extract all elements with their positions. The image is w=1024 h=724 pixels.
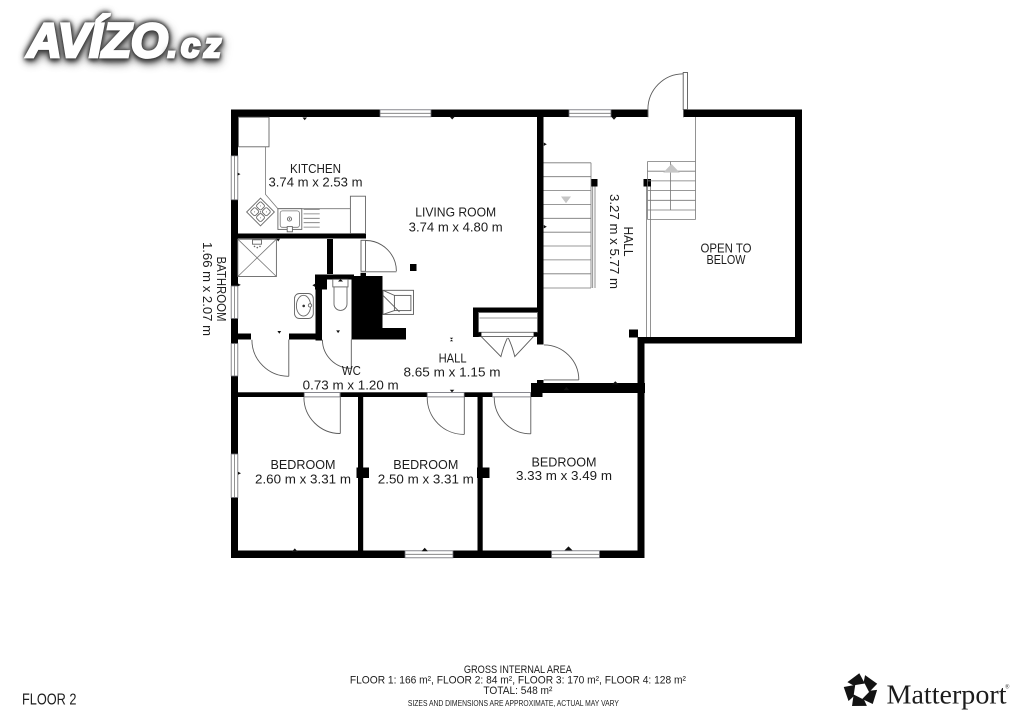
- svg-text:BELOW: BELOW: [707, 252, 747, 267]
- svg-text:Matterport: Matterport: [887, 678, 1007, 709]
- svg-text:3.33 m x 3.49 m: 3.33 m x 3.49 m: [516, 468, 612, 483]
- svg-text:3.74 m x 4.80 m: 3.74 m x 4.80 m: [409, 220, 503, 235]
- svg-text:SIZES AND DIMENSIONS ARE APPRO: SIZES AND DIMENSIONS ARE APPROXIMATE, AC…: [408, 699, 620, 708]
- svg-text:3.74 m x 2.53 m: 3.74 m x 2.53 m: [269, 175, 363, 190]
- svg-text:2.50 m x 3.31 m: 2.50 m x 3.31 m: [378, 471, 474, 486]
- svg-text:2.60 m x 3.31 m: 2.60 m x 3.31 m: [255, 471, 351, 486]
- svg-text:BATHROOM: BATHROOM: [214, 257, 229, 322]
- svg-text:FLOOR 2: FLOOR 2: [22, 692, 77, 709]
- svg-text:BEDROOM: BEDROOM: [271, 457, 336, 472]
- svg-text:LIVING ROOM: LIVING ROOM: [415, 205, 496, 220]
- svg-text:TOTAL: 548 m²: TOTAL: 548 m²: [483, 685, 552, 697]
- svg-text:3.27 m x 5.77 m: 3.27 m x 5.77 m: [607, 194, 622, 289]
- svg-text:KITCHEN: KITCHEN: [290, 161, 341, 176]
- svg-text:1.66 m x 2.07 m: 1.66 m x 2.07 m: [200, 242, 215, 336]
- svg-text:®: ®: [1005, 684, 1010, 691]
- svg-text:HALL: HALL: [621, 227, 636, 257]
- svg-text:WC: WC: [342, 363, 361, 378]
- svg-text:0.73 m x 1.20 m: 0.73 m x 1.20 m: [303, 377, 399, 392]
- svg-text:8.65 m x 1.15 m: 8.65 m x 1.15 m: [404, 365, 501, 380]
- svg-text:HALL: HALL: [439, 351, 467, 366]
- svg-text:BEDROOM: BEDROOM: [393, 457, 458, 472]
